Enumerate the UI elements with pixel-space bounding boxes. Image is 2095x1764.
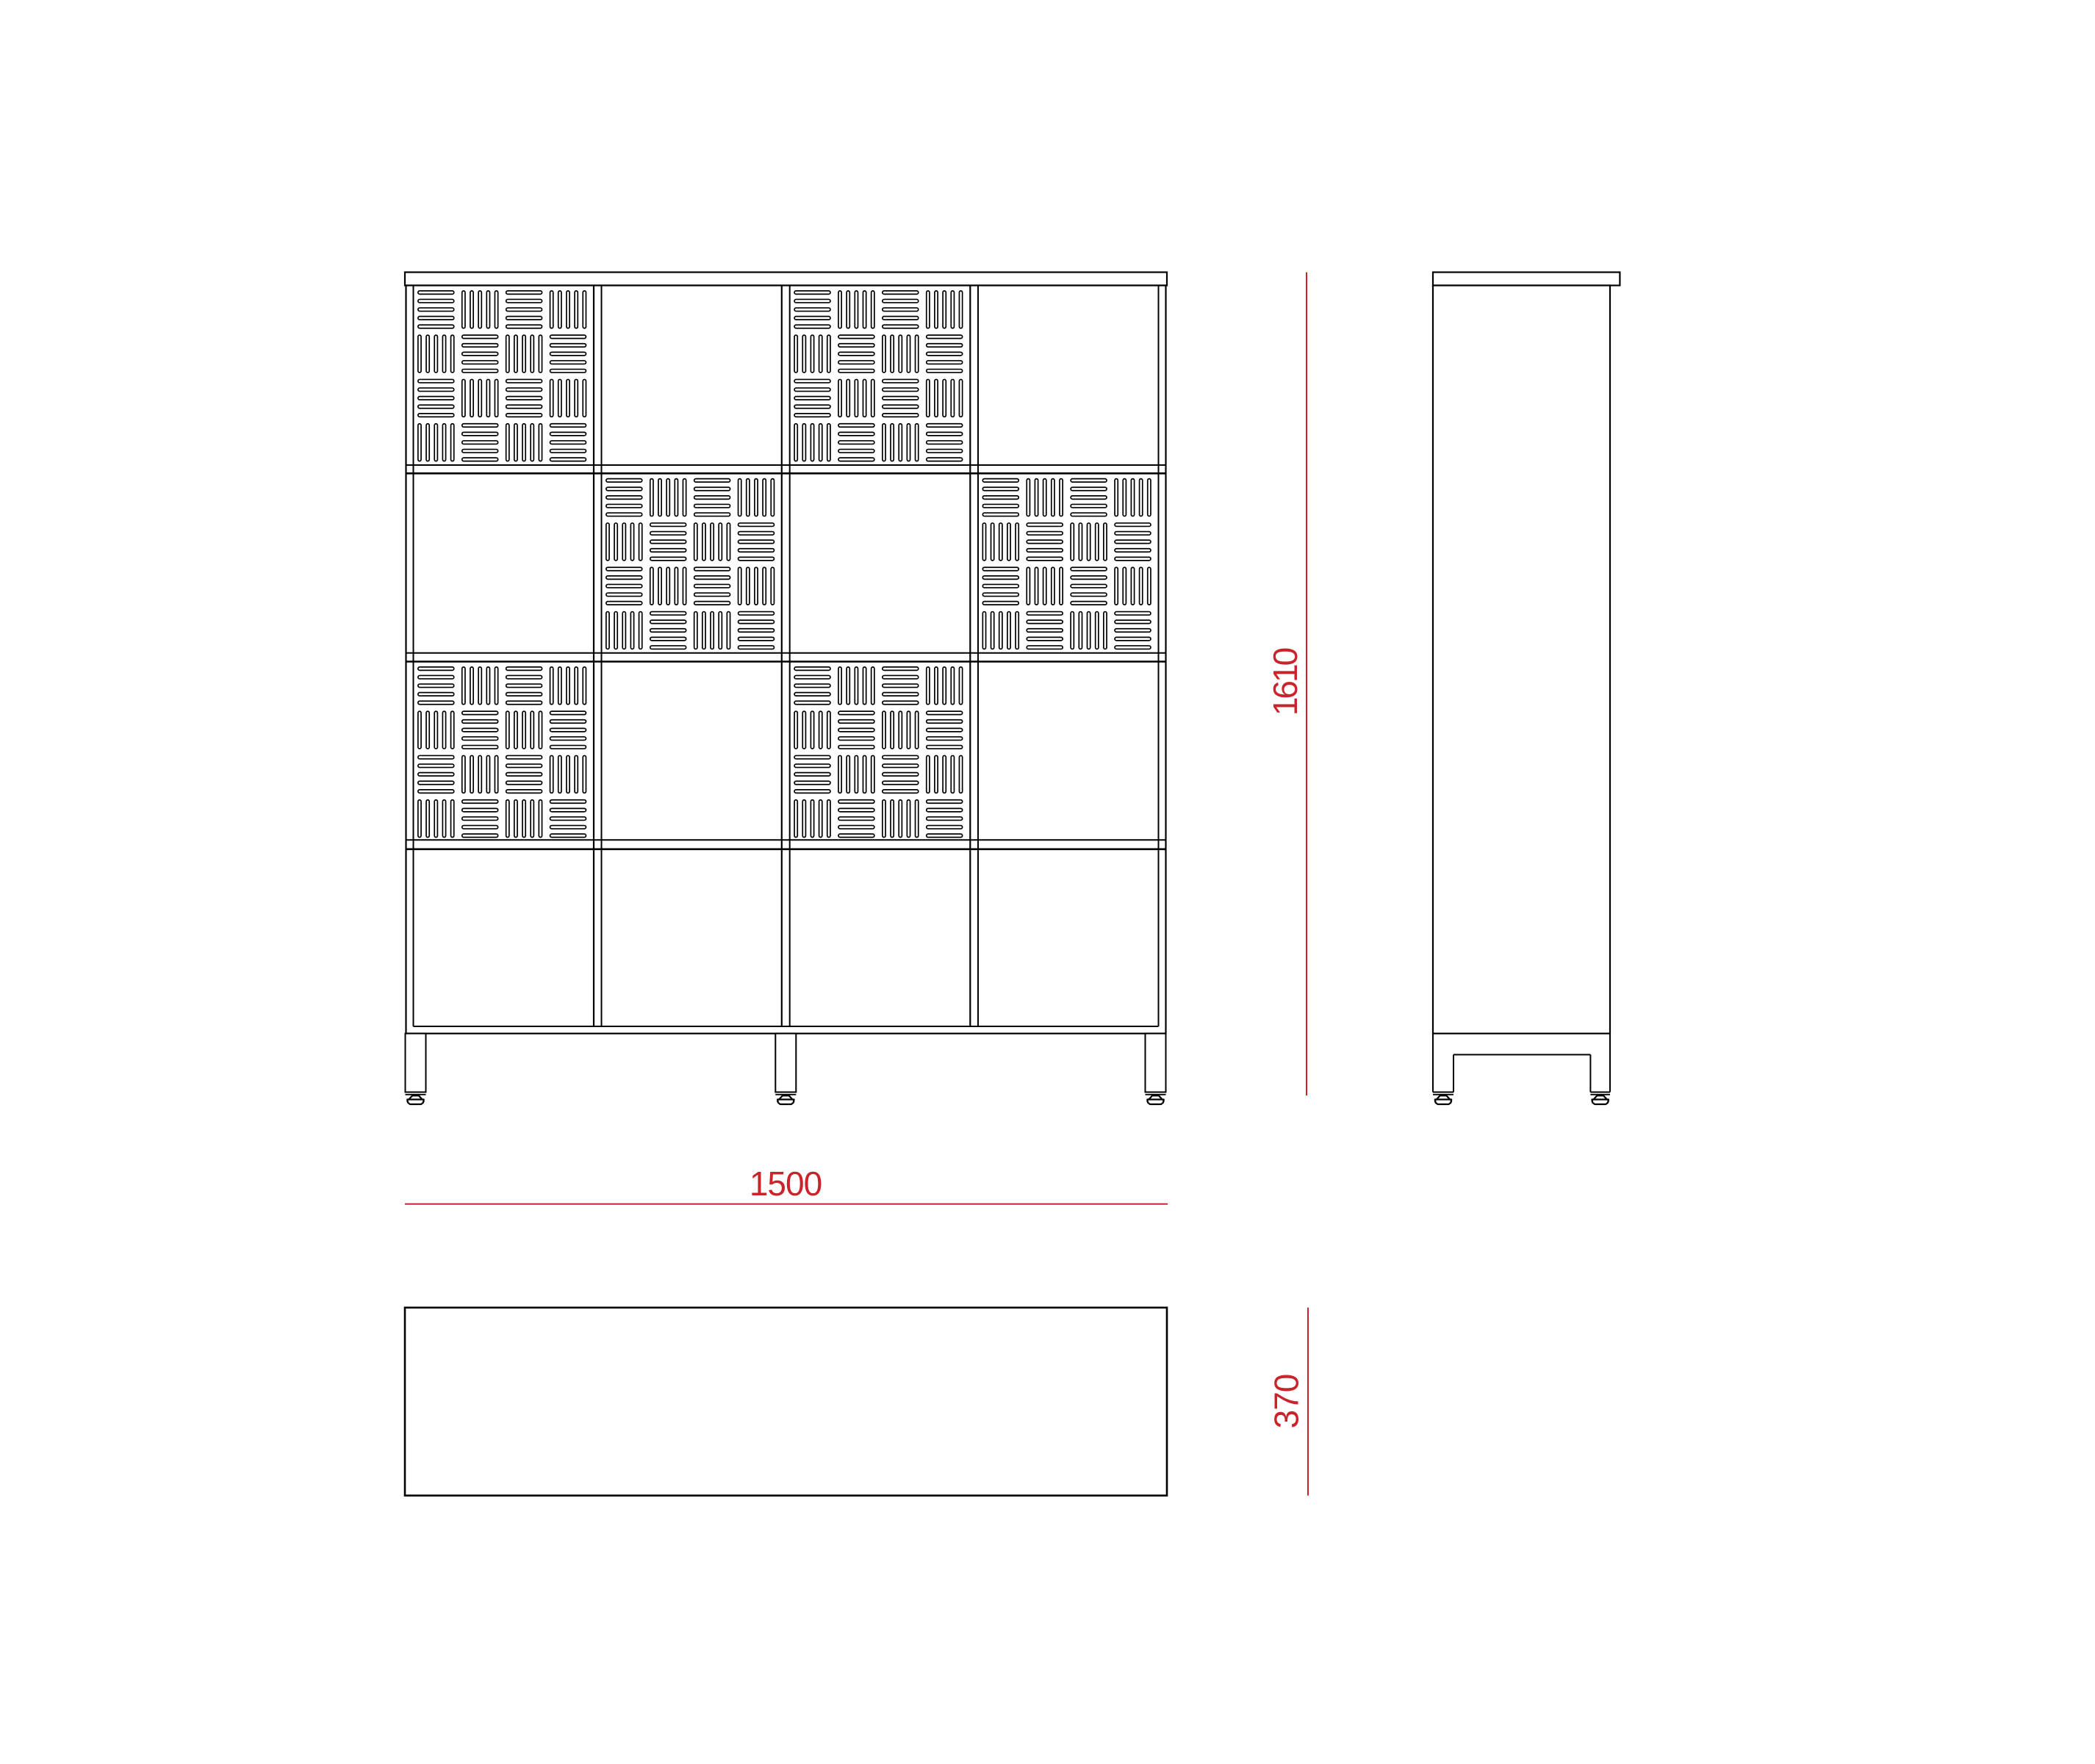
svg-text:370: 370 [1268,1375,1306,1429]
svg-text:1500: 1500 [750,1164,822,1203]
svg-text:1610: 1610 [1266,648,1304,716]
